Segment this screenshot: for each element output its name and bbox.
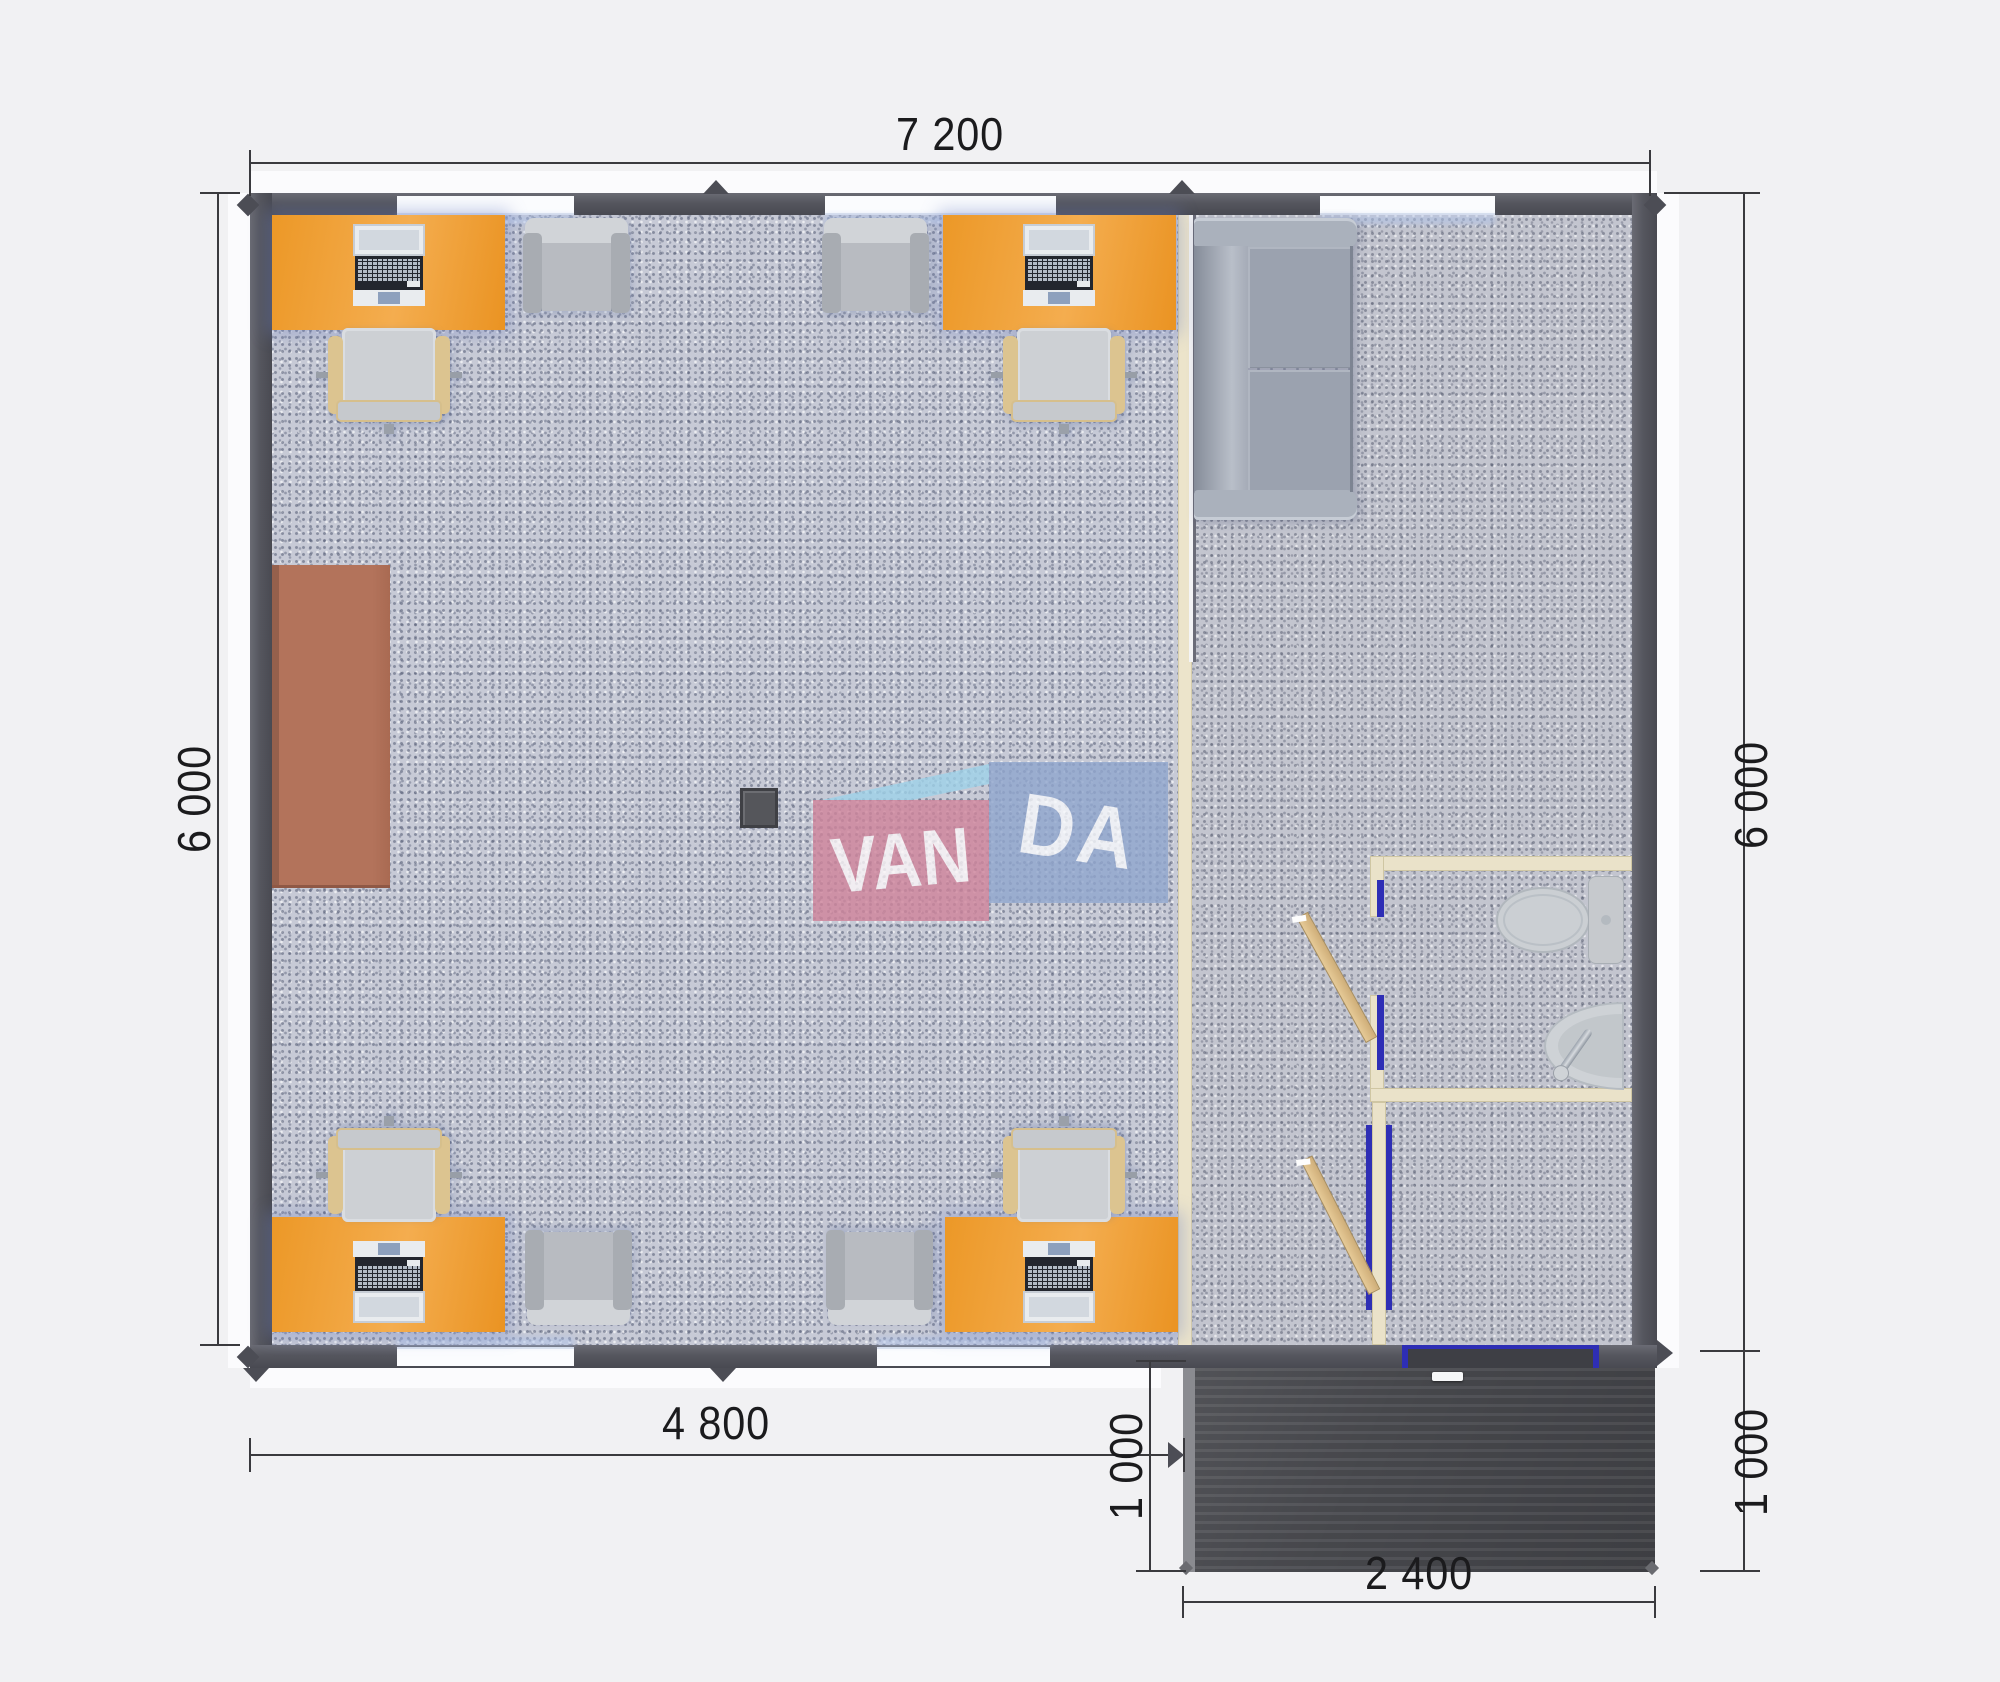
laptop-keyboard (355, 1257, 423, 1291)
dim-tick (200, 1344, 240, 1346)
office-chair-bottom-right (1003, 1126, 1125, 1222)
laptop-bottom-left (353, 1241, 425, 1323)
dim-label-top: 7 200 (830, 108, 1070, 160)
sofa (1194, 218, 1357, 520)
dim-tick (1664, 192, 1760, 194)
dim-tick (1182, 1586, 1184, 1618)
laptop-touchpad (1048, 1243, 1070, 1255)
outer-sill-bottom (250, 1368, 1161, 1388)
bathroom-door-frame-top (1377, 880, 1384, 917)
module-mark-top-1 (703, 180, 729, 194)
laptop-bottom-right (1023, 1241, 1095, 1323)
entrance-jamb-right (1593, 1345, 1599, 1368)
dim-tick (1649, 150, 1651, 196)
dim-label-left: 6 000 (168, 679, 220, 919)
office-chair-top-right (1003, 328, 1125, 424)
armchair-top-1 (523, 218, 630, 315)
outer-sill-left (228, 193, 250, 1368)
outer-sill-right (1657, 193, 1679, 1368)
dim-label-bottom-left: 4 800 (596, 1397, 836, 1449)
dim-line-bottom-left (250, 1454, 1184, 1456)
logo-text-da: DA (988, 750, 1169, 914)
toilet (1496, 876, 1624, 964)
laptop-screen (353, 224, 425, 256)
armchair-top-2 (822, 218, 929, 315)
entrance-threshold (1408, 1345, 1593, 1349)
floor-plan: VAN DA 7 200 6 000 6 000 1 000 4 800 1 0… (0, 0, 2000, 1682)
dim-tick (249, 150, 251, 196)
corner-mark-porch-right (1657, 1340, 1673, 1366)
laptop-screen (353, 1291, 425, 1323)
vestibule-wall (1372, 1102, 1386, 1345)
module-mark-bottom-2 (710, 1368, 736, 1382)
laptop-touchpad (378, 292, 400, 304)
dim-label-porch-right: 1 000 (1725, 1342, 1777, 1582)
bathroom-wall-bottom (1370, 1088, 1632, 1102)
laptop-screen (1023, 1291, 1095, 1323)
dim-arrow (1168, 1442, 1184, 1468)
laptop-top-left (353, 224, 425, 306)
toilet-bowl (1496, 887, 1590, 953)
laptop-touchpad (1048, 292, 1070, 304)
window-bottom-1 (397, 1347, 574, 1366)
office-chair-top-left (328, 328, 450, 424)
laptop-keyboard (355, 256, 423, 290)
armchair-bottom-2 (826, 1228, 933, 1325)
dim-label-porch-left: 1 000 (1100, 1346, 1152, 1586)
vestibule-door-frame-right (1386, 1125, 1392, 1310)
laptop-top-right (1023, 224, 1095, 306)
wall-left (250, 193, 272, 1368)
vanda-logo: VAN DA (810, 738, 1175, 928)
bathroom-wall-top (1370, 856, 1632, 871)
office-chair-bottom-left (328, 1126, 450, 1222)
window-top-1 (397, 196, 574, 215)
dim-label-porch-bottom: 2 400 (1299, 1547, 1539, 1599)
dim-label-right: 6 000 (1725, 675, 1777, 915)
entry-porch (1183, 1368, 1655, 1572)
laptop-touchpad (378, 1243, 400, 1255)
laptop-screen (1023, 224, 1095, 256)
module-mark-top-2 (1169, 180, 1195, 194)
bathroom-door-frame-bottom (1377, 995, 1384, 1070)
dim-line-porch-bottom (1183, 1601, 1655, 1603)
dim-tick (200, 192, 240, 194)
wall-right (1632, 193, 1657, 1368)
dim-tick (249, 1438, 251, 1472)
outer-sill-top (250, 171, 1657, 193)
window-top-3 (1320, 196, 1495, 215)
door-handle (1432, 1372, 1463, 1381)
logo-text-van: VAN (819, 793, 984, 927)
cabinet (272, 565, 390, 888)
floor-box (740, 788, 778, 828)
toilet-tank (1588, 876, 1624, 964)
window-light-5 (877, 1337, 1050, 1346)
armchair-bottom-1 (525, 1228, 632, 1325)
window-light-4 (397, 1337, 574, 1346)
window-bottom-2 (877, 1347, 1050, 1366)
module-mark-bottom-1 (243, 1368, 269, 1382)
dim-tick (1654, 1586, 1656, 1618)
laptop-keyboard (1025, 256, 1093, 290)
window-top-2 (825, 196, 1056, 215)
laptop-keyboard (1025, 1257, 1093, 1291)
dim-line-top (250, 162, 1650, 164)
